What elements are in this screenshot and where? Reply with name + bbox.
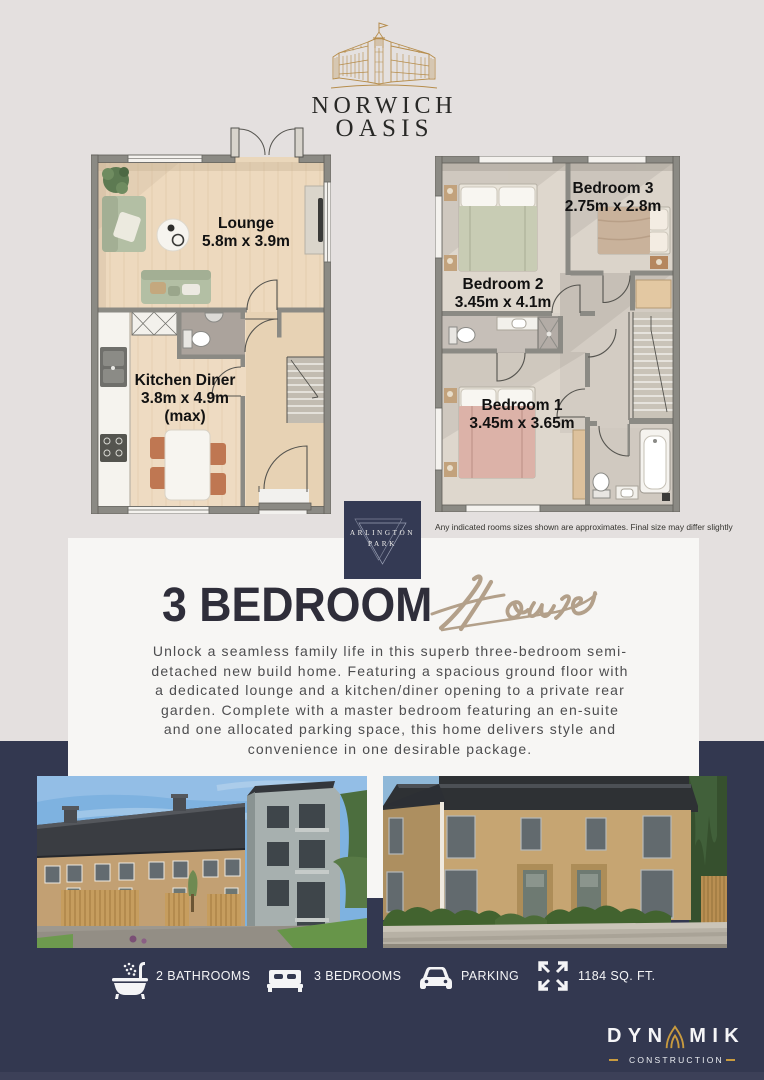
- svg-text:3.8m x 4.9m: 3.8m x 4.9m: [141, 390, 229, 407]
- svg-text:ARLINGTON: ARLINGTON: [350, 529, 415, 537]
- svg-text:PARK: PARK: [368, 540, 397, 548]
- svg-text:2.75m x 2.8m: 2.75m x 2.8m: [565, 198, 662, 215]
- svg-text:3.45m x 4.1m: 3.45m x 4.1m: [455, 294, 552, 311]
- svg-text:5.8m x 3.9m: 5.8m x 3.9m: [202, 233, 290, 250]
- svg-text:Bedroom 2: Bedroom 2: [463, 276, 544, 293]
- svg-text:Bedroom 1: Bedroom 1: [482, 397, 563, 414]
- svg-text:3.45m x 3.65m: 3.45m x 3.65m: [469, 415, 574, 432]
- svg-text:(max): (max): [164, 408, 205, 425]
- svg-text:Lounge: Lounge: [218, 215, 274, 232]
- svg-text:Kitchen Diner: Kitchen Diner: [135, 372, 236, 389]
- svg-text:Bedroom 3: Bedroom 3: [573, 180, 654, 197]
